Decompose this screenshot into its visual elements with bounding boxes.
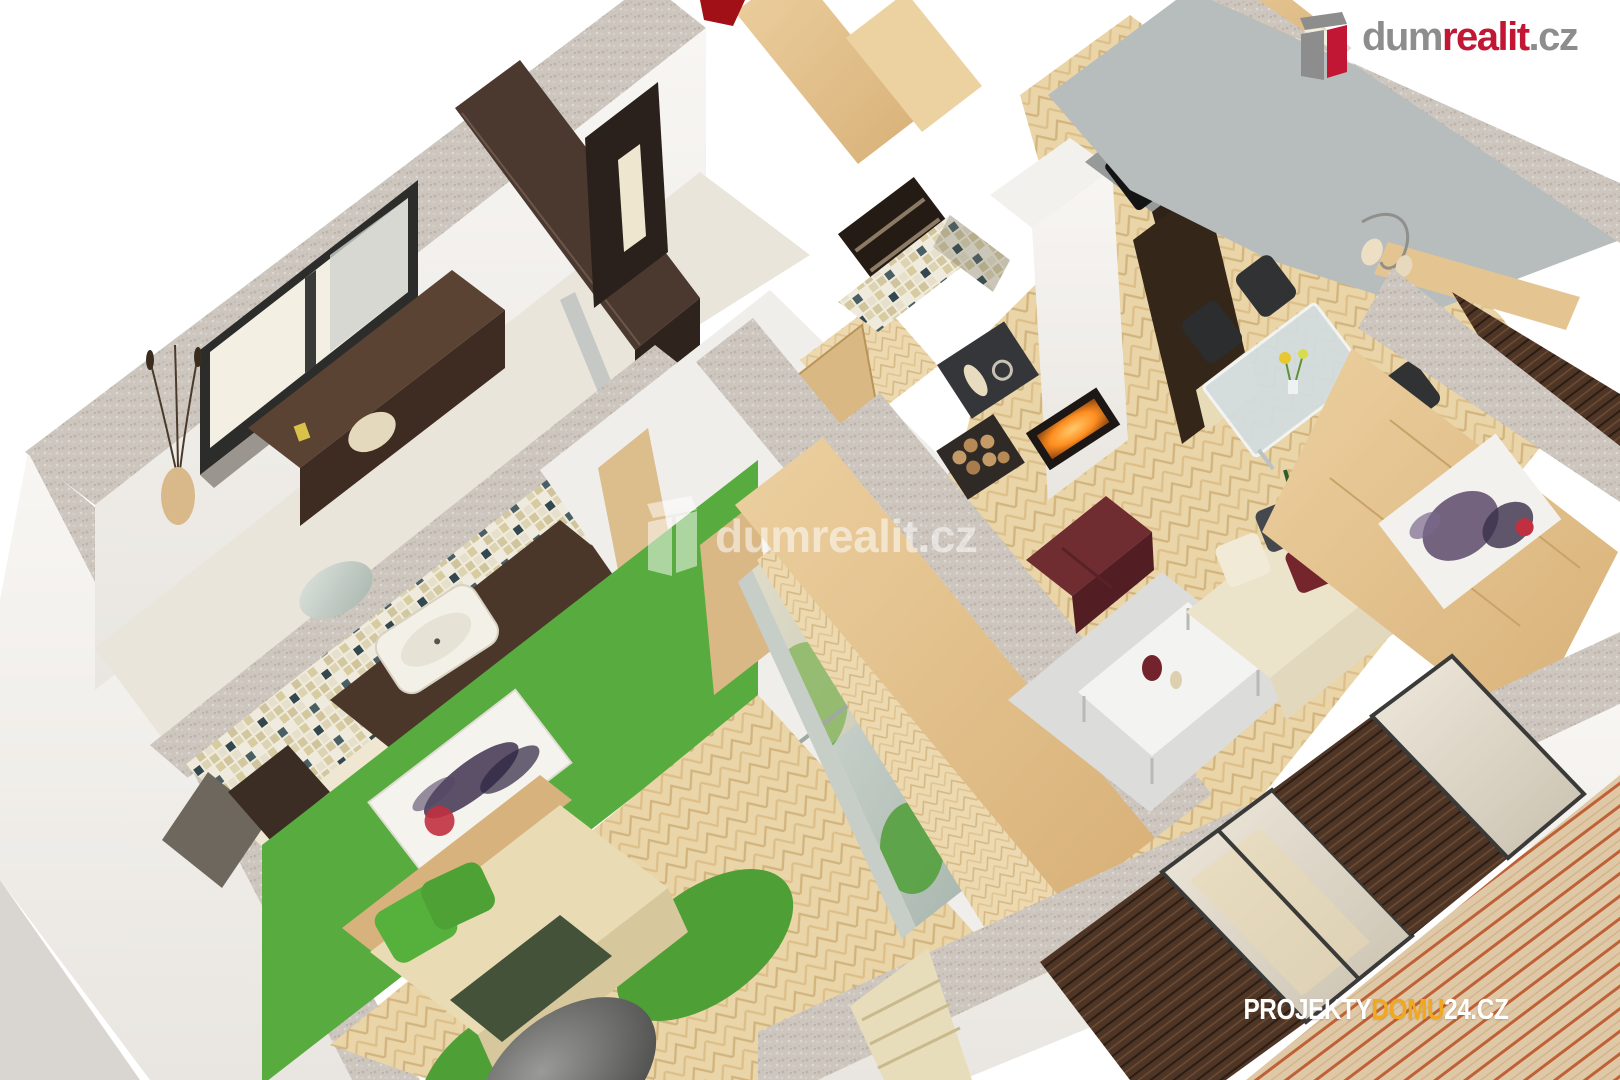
- footer-part-3: 24.CZ: [1444, 994, 1508, 1026]
- table-vase: [1142, 655, 1162, 681]
- render-canvas: [0, 0, 1620, 1080]
- floorplan-render: [0, 0, 1620, 1080]
- brand-logo-text: dumrealit.cz: [1362, 4, 1577, 70]
- building-cube-icon: [1298, 12, 1352, 82]
- logo-part-suffix: .cz: [1529, 15, 1578, 59]
- logo-part-red: realit: [1442, 15, 1529, 59]
- footer-part-1: PROJEKTY: [1243, 994, 1371, 1026]
- footer-watermark: PROJEKTYDOMU24.CZ: [1243, 994, 1508, 1027]
- logo-part-gray: dum: [1362, 15, 1442, 59]
- footer-part-2: DOMU: [1371, 994, 1444, 1026]
- brand-logo: dumrealit.cz: [1298, 4, 1577, 82]
